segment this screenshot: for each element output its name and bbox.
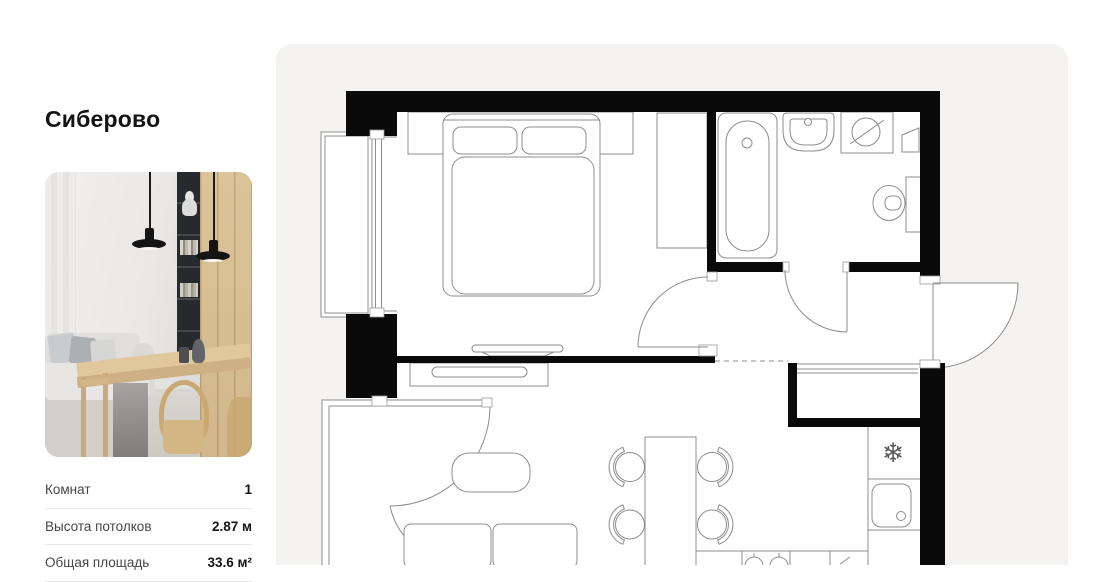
pendant-lamp-cord bbox=[149, 172, 151, 228]
living-tv-console bbox=[410, 363, 548, 386]
spec-label: Комнат bbox=[45, 482, 91, 497]
dining-table bbox=[645, 437, 696, 565]
wall-left-lower bbox=[346, 314, 397, 398]
photo-bust-sculpture bbox=[182, 199, 198, 216]
pendant-lamp-light bbox=[139, 247, 159, 250]
snowflake-icon: ❄ bbox=[882, 438, 905, 469]
spec-value: 2.87 м bbox=[212, 519, 252, 534]
wall-closet-bottom bbox=[788, 418, 945, 427]
bathroom-sink bbox=[783, 113, 834, 151]
photo-table-marble-leg bbox=[113, 383, 148, 457]
wall-closet-left bbox=[788, 363, 797, 427]
wall-top bbox=[346, 91, 940, 112]
bed bbox=[443, 114, 600, 296]
pendant-lamp-cord bbox=[213, 172, 215, 240]
photo-chair-seat bbox=[163, 420, 204, 454]
pouf bbox=[452, 453, 530, 492]
sidebar: Сиберово bbox=[0, 0, 276, 565]
chair bbox=[616, 453, 645, 482]
chair bbox=[698, 510, 727, 539]
project-title: Сиберово bbox=[45, 106, 160, 133]
spec-row-total-area: Общая площадь 33.6 м² bbox=[45, 545, 252, 582]
photo-table-leg bbox=[103, 373, 108, 457]
sofa-cushion bbox=[493, 524, 577, 565]
bathtub bbox=[718, 113, 777, 258]
spec-label: Высота потолков bbox=[45, 519, 152, 534]
wall-right-lower bbox=[920, 363, 945, 565]
wall-bathroom-left bbox=[707, 112, 716, 262]
pendant-lamp-light bbox=[203, 259, 223, 262]
spec-list: Комнат 1 Высота потолков 2.87 м Общая пл… bbox=[45, 472, 252, 582]
floorplan-svg: ❄ bbox=[276, 44, 1069, 565]
spec-value: 1 bbox=[244, 482, 252, 497]
spec-value: 33.6 м² bbox=[207, 555, 252, 570]
interior-photo[interactable] bbox=[45, 172, 252, 457]
photo-table-leg bbox=[81, 377, 86, 457]
spec-label: Общая площадь bbox=[45, 555, 149, 570]
floorplan-card: ❄ bbox=[276, 44, 1069, 565]
spec-row-ceiling-height: Высота потолков 2.87 м bbox=[45, 509, 252, 546]
photo-books bbox=[180, 240, 199, 254]
washing-machine bbox=[841, 112, 893, 153]
chair bbox=[616, 510, 645, 539]
wall-right-upper bbox=[920, 111, 940, 276]
kitchen-sink bbox=[872, 484, 911, 527]
bed-pillow bbox=[522, 127, 586, 154]
photo-books bbox=[180, 283, 199, 297]
wall-left-upper bbox=[346, 91, 397, 136]
chair bbox=[698, 453, 727, 482]
bed-pillow bbox=[453, 127, 517, 154]
wall-bathroom-bottom-right bbox=[849, 262, 920, 272]
apartment-footprint bbox=[322, 91, 945, 565]
sofa-cushion bbox=[404, 524, 491, 565]
photo-vase bbox=[179, 347, 189, 363]
spec-row-rooms: Комнат 1 bbox=[45, 472, 252, 509]
sofa bbox=[404, 524, 577, 565]
photo-chair bbox=[227, 397, 252, 457]
wall-bathroom-bottom-left bbox=[707, 262, 783, 272]
wall-bedroom-partition bbox=[397, 356, 715, 363]
